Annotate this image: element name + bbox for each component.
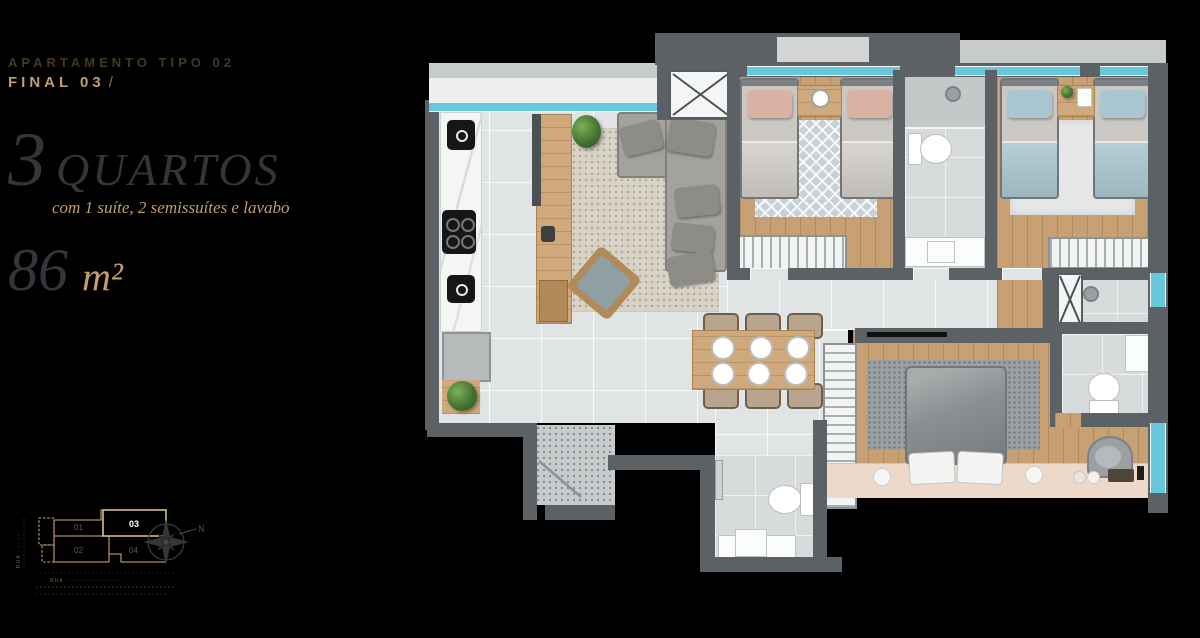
wall-kitchen-bottom bbox=[427, 423, 525, 437]
kitchen-sink-top bbox=[447, 120, 475, 150]
plant-icon bbox=[447, 381, 477, 411]
wall-lavabo-right bbox=[813, 420, 827, 557]
headboard bbox=[742, 80, 797, 86]
bedroom2-wardrobe bbox=[1048, 237, 1152, 269]
specs-panel: 3 QUARTOS com 1 suíte, 2 semissuítes e l… bbox=[8, 130, 408, 300]
tv-icon bbox=[867, 332, 947, 337]
key-plan-unit-04: 04 bbox=[129, 546, 138, 555]
headboard bbox=[1002, 80, 1057, 86]
window-bedroom2-b bbox=[1100, 66, 1148, 76]
wall-lavabo-bottom bbox=[700, 557, 842, 572]
bedroom1-wardrobe bbox=[732, 235, 847, 272]
mirror-icon bbox=[1077, 88, 1092, 107]
sink-drain-icon bbox=[456, 284, 468, 296]
floor-plan bbox=[425, 28, 1200, 608]
bedroom2-bed-left bbox=[1000, 78, 1059, 199]
place-setting bbox=[784, 362, 808, 386]
bed-sheet bbox=[1095, 141, 1150, 197]
balcony-slab-top-right bbox=[960, 40, 1166, 63]
unit-label: FINAL 03/ bbox=[8, 74, 408, 91]
x-icon bbox=[671, 72, 730, 117]
lavabo-toilet bbox=[768, 485, 802, 514]
bedroom2-bed-right bbox=[1093, 78, 1152, 199]
x-icon bbox=[1059, 275, 1081, 324]
burner-icon bbox=[461, 235, 475, 249]
suite-bath-vanity bbox=[1125, 335, 1150, 372]
door-gap-suitebath bbox=[1055, 413, 1081, 427]
decor-vase bbox=[1137, 466, 1144, 480]
window-bedroom1 bbox=[747, 66, 900, 76]
cooktop bbox=[442, 210, 476, 254]
armchair-cushion bbox=[1095, 446, 1121, 468]
decor-ball bbox=[873, 468, 891, 486]
pillow bbox=[847, 90, 892, 118]
key-plan-unit-03: 03 bbox=[129, 519, 139, 529]
unit-label-slash: / bbox=[109, 74, 117, 91]
street-label-left: RUA ········ bbox=[16, 531, 22, 568]
window-living bbox=[429, 102, 661, 112]
compass: N bbox=[140, 512, 230, 574]
decor-ball bbox=[1025, 466, 1043, 484]
pillow bbox=[1007, 90, 1052, 118]
project-label: APARTAMENTO TIPO 02 bbox=[8, 55, 408, 70]
rooms-word: QUARTOS bbox=[56, 143, 281, 196]
entry-door-swing bbox=[533, 453, 593, 508]
bed-sheet bbox=[842, 141, 897, 197]
sofa-cushion bbox=[674, 184, 721, 218]
common-hall bbox=[777, 37, 869, 62]
lavabo-toilet-tank bbox=[800, 483, 814, 516]
door-gap-bedroom2 bbox=[1002, 268, 1042, 280]
balcony-slab-top-left bbox=[429, 63, 659, 78]
compass-north-label: N bbox=[198, 524, 205, 534]
place-setting bbox=[747, 362, 771, 386]
door-gap-bedroom1 bbox=[750, 268, 788, 280]
bathroom1-shower bbox=[905, 77, 985, 129]
compass-icon: N bbox=[140, 512, 230, 574]
area-value: 86 bbox=[8, 244, 68, 296]
suite-bath-toilet bbox=[1088, 373, 1120, 403]
decor-ball bbox=[1087, 471, 1100, 484]
sofa-cushion bbox=[666, 117, 717, 158]
area-row: 86 m² bbox=[8, 244, 408, 300]
key-plan-unit-02: 02 bbox=[74, 546, 83, 555]
headboard bbox=[842, 80, 897, 86]
suite-shaft-x bbox=[1057, 273, 1083, 326]
bed-sheet bbox=[742, 141, 797, 197]
suite-pillow bbox=[908, 451, 956, 485]
page: APARTAMENTO TIPO 02 FINAL 03/ 3 QUARTOS … bbox=[0, 0, 1200, 638]
burner-icon bbox=[461, 218, 475, 232]
bathroom1-toilet bbox=[920, 134, 952, 164]
door-gap-bath1 bbox=[913, 268, 949, 280]
area-unit: m² bbox=[82, 253, 123, 300]
plant-icon bbox=[1061, 86, 1073, 98]
window-right-b bbox=[1150, 423, 1166, 493]
window-right-a bbox=[1150, 273, 1166, 307]
pillow bbox=[1100, 90, 1145, 118]
wall-lavabo-left bbox=[700, 455, 715, 572]
rooms-number: 3 bbox=[8, 130, 46, 190]
sofa-cushion bbox=[671, 222, 716, 254]
place-setting bbox=[711, 362, 735, 386]
burner-icon bbox=[446, 218, 460, 232]
shaft-x bbox=[669, 70, 732, 119]
wall-living-bedroom1 bbox=[727, 70, 740, 277]
balcony-strip bbox=[429, 78, 659, 102]
lamp-icon bbox=[811, 89, 830, 108]
pillow bbox=[747, 90, 792, 118]
place-setting bbox=[786, 336, 810, 360]
kitchen-sink-bottom bbox=[447, 275, 475, 303]
rooms-row: 3 QUARTOS bbox=[8, 130, 408, 196]
key-plan-unit-01: 01 bbox=[74, 523, 83, 532]
headboard bbox=[1095, 80, 1150, 86]
wall-living-bottom bbox=[608, 455, 715, 470]
decor-tray bbox=[1108, 469, 1134, 482]
bedroom1-bed-left bbox=[740, 78, 799, 199]
wall-left-outer bbox=[425, 100, 439, 430]
place-setting bbox=[711, 336, 735, 360]
plant-icon bbox=[572, 115, 601, 148]
place-setting bbox=[749, 336, 773, 360]
unit-label-text: FINAL 03 bbox=[8, 74, 105, 91]
suite-pillow bbox=[956, 451, 1004, 485]
island-dark-counter bbox=[532, 114, 541, 206]
street-label-bottom: RUA ····················· bbox=[50, 578, 122, 584]
bed-sheet bbox=[1002, 141, 1057, 197]
info-panel: APARTAMENTO TIPO 02 FINAL 03/ bbox=[8, 55, 408, 91]
lavabo-sink bbox=[735, 529, 767, 557]
refrigerator bbox=[442, 332, 491, 382]
wall-suitebath-mid bbox=[1050, 322, 1148, 334]
wall-bath1-bedroom2 bbox=[985, 70, 997, 277]
window-bedroom2-a bbox=[955, 66, 1080, 76]
lavabo-door bbox=[715, 460, 723, 500]
shower-head-icon bbox=[945, 86, 961, 102]
bedroom1-bed-right bbox=[840, 78, 899, 199]
suite-bed bbox=[905, 366, 1007, 465]
burner-icon bbox=[446, 235, 460, 249]
shower-head-icon bbox=[1083, 286, 1099, 302]
wall-bedroom1-bath1 bbox=[893, 70, 905, 277]
bathroom1-sink bbox=[927, 241, 955, 263]
decor-ball bbox=[1073, 471, 1086, 484]
rooms-detail: com 1 suíte, 2 semissuítes e lavabo bbox=[52, 198, 408, 218]
sink-drain-icon bbox=[456, 130, 468, 142]
cutting-board bbox=[539, 280, 568, 322]
coffee-machine-icon bbox=[541, 226, 555, 242]
